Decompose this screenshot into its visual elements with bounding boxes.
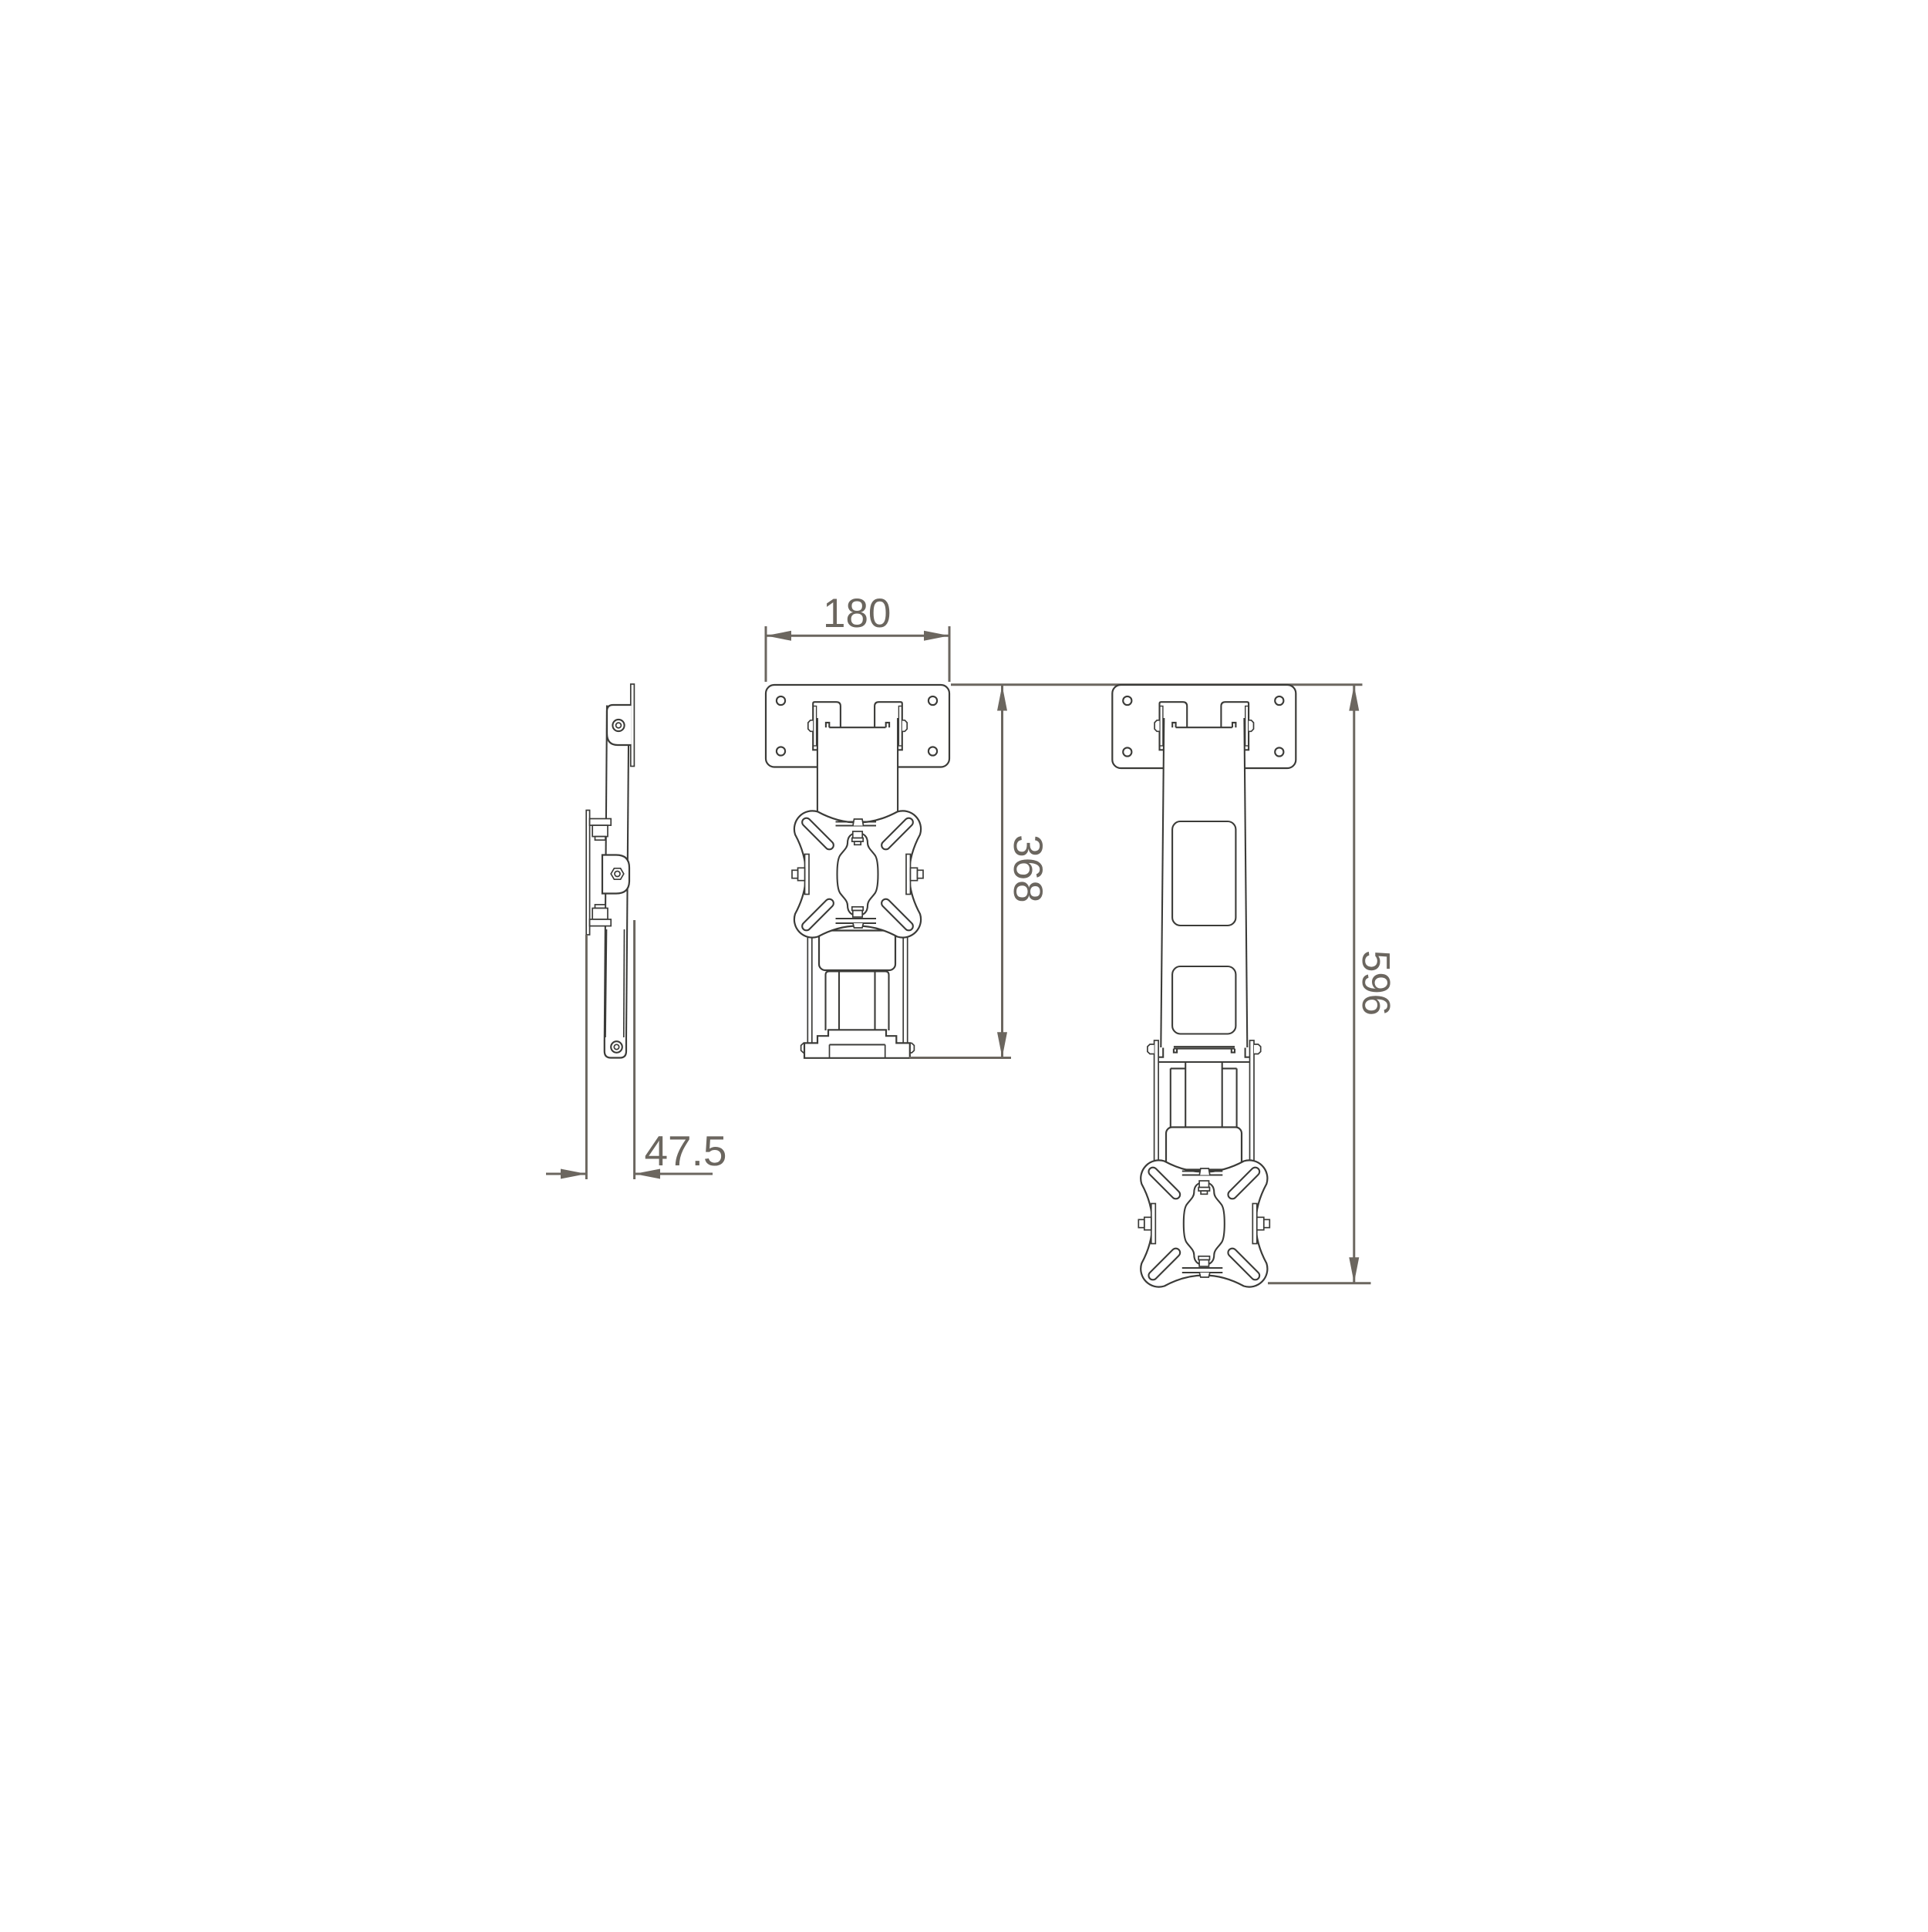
- svg-text:180: 180: [823, 591, 891, 636]
- svg-text:596: 596: [1354, 950, 1398, 1016]
- svg-text:368: 368: [1005, 835, 1050, 902]
- svg-text:47.5: 47.5: [644, 1127, 726, 1175]
